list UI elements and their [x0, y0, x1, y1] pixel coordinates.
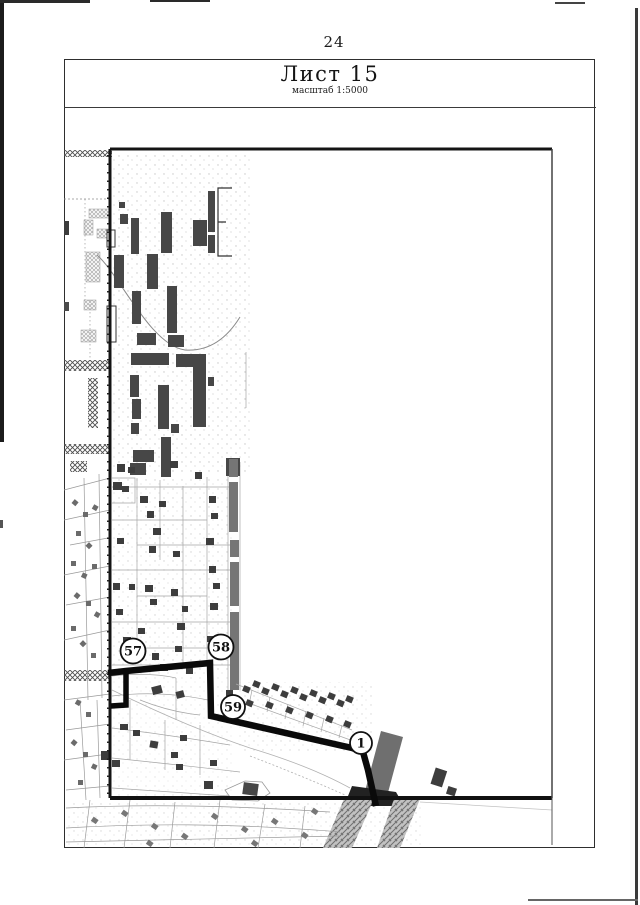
- scanned-page: 24 Лист 15 масштаб 1:5000: [0, 0, 640, 905]
- boundary-marker-58: 58: [209, 635, 234, 660]
- boundary-marker-1: 1: [350, 732, 372, 754]
- scan-edge-top-3: [555, 2, 585, 4]
- svg-text:59: 59: [224, 701, 242, 716]
- scan-edge-left-mark: [0, 520, 3, 528]
- boundary-marker-59: 59: [221, 695, 245, 719]
- scan-edge-left: [0, 0, 4, 442]
- svg-text:1: 1: [356, 737, 365, 752]
- map-canvas: 57 58 59 1: [0, 0, 640, 905]
- scan-edge-right: [635, 8, 638, 905]
- scan-edge-top-2: [150, 0, 210, 2]
- svg-text:57: 57: [124, 645, 142, 660]
- scan-mark-bottom-right: [528, 899, 638, 901]
- boundary-marker-57: 57: [121, 639, 146, 664]
- left-margin-content: [64, 150, 120, 800]
- scan-edge-top-1: [0, 0, 90, 3]
- svg-text:58: 58: [212, 641, 230, 656]
